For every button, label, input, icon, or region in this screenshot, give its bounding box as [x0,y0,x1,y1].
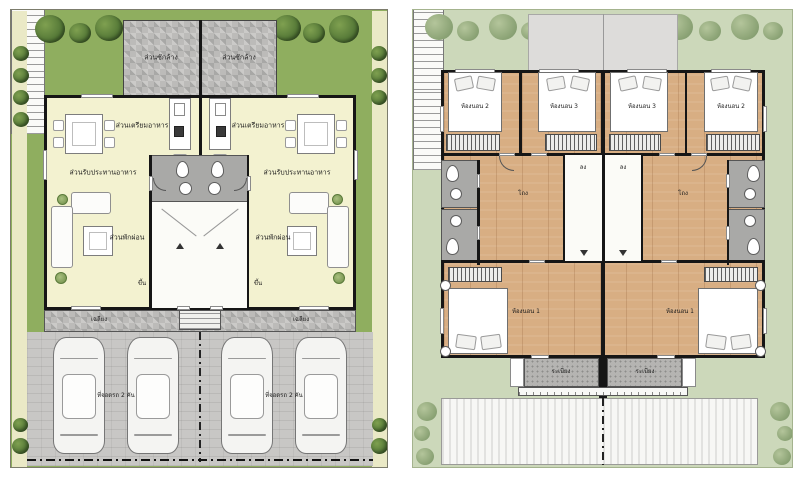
chair [336,137,347,148]
stairs-down-label: ลง [580,165,587,171]
floor-plan-canvas: ส่วนซักล้าง ส่วนซักล้าง ส่วนเตรียมอาหาร … [0,0,800,477]
bedroom-door [659,153,675,157]
stair-spine-wall [602,153,605,263]
bedroom-bed [704,72,758,132]
master-door [529,260,545,264]
tree [95,15,123,41]
bedroom1-label: ห้องนอน 1 [666,309,694,315]
first-floor-plan: ส่วนซักล้าง ส่วนซักล้าง ส่วนเตรียมอาหาร … [10,9,388,468]
bedroom-bed [538,72,596,132]
wash-basin [450,215,462,227]
coffee-table [287,226,317,256]
porch-label: เฉลียง [91,317,107,323]
bush [777,426,793,441]
tree [35,15,65,43]
living-label: ส่วนพักผ่อน [110,235,145,242]
bush [417,402,437,421]
balcony-label: ระเบียง [552,369,571,375]
dresser [704,267,758,282]
sofa [51,206,73,268]
bush [13,68,29,83]
sofa [71,192,111,214]
tree [69,23,91,43]
chair [285,137,296,148]
laundry-label: ส่วนซักล้าง [144,55,178,62]
window [763,308,767,334]
bedroom2-label: ห้องนอน 2 [461,104,489,110]
plant [57,194,68,205]
bedroom-bed [448,72,502,132]
chair [336,120,347,131]
window [763,106,767,132]
balcony-wing-wall [510,358,524,387]
porch-label: เฉลียง [293,317,309,323]
sofa [289,192,329,214]
wardrobe [446,134,500,151]
carport-roof [441,398,758,465]
bedroom3-label: ห้องนอน 3 [550,104,578,110]
wash-basin [744,215,756,227]
bedroom3-label: ห้องนอน 3 [628,104,656,110]
pantry-label: ส่วนเตรียมอาหาร [232,123,285,130]
stove [216,126,226,137]
window [354,150,358,180]
bathroom-door [726,174,730,188]
bush [371,438,388,454]
plant [332,194,343,205]
bedroom-wall [685,70,688,155]
second-floor-plan: ห้องนอน 2 ห้องนอน 3 ห้องนอน 3 ห้องนอน 2 … [412,9,793,468]
tree [425,14,453,40]
bathroom-door [247,176,251,191]
roof-ridge-line [603,14,604,72]
bush [371,46,387,61]
property-line [27,459,373,461]
window [287,94,319,98]
chair [53,137,64,148]
balcony-wing-wall [682,358,696,387]
stove [174,126,184,137]
tree [763,22,783,40]
coffee-table [83,226,113,256]
toilet [446,238,459,255]
window [81,94,113,98]
chair [53,120,64,131]
balcony-label: ระเบียง [636,369,655,375]
parking-label: ที่จอดรถ 2 คัน [97,393,135,399]
bedroom1-label: ห้องนอน 1 [512,309,540,315]
parking-label: ที่จอดรถ 2 คัน [265,393,303,399]
chair [104,137,115,148]
down-arrow [619,250,627,256]
bedroom-bed [610,72,668,132]
tree [489,14,517,40]
stair-hall [152,202,247,308]
bush [371,90,387,105]
master-bed [698,288,758,354]
up-arrow [216,243,224,249]
bush [13,90,29,105]
chair [285,120,296,131]
balcony-railing [518,387,688,396]
party-wall [199,20,202,100]
bush [13,418,28,432]
tree [699,21,721,41]
down-arrow [580,250,588,256]
bush [371,68,387,83]
pantry-label: ส่วนเตรียมอาหาร [116,123,169,130]
bedroom-wall [519,70,522,155]
bathroom [441,160,479,208]
stairs-up-label: ขึ้น [254,281,262,287]
dining-table [65,114,103,154]
tree [329,15,359,43]
stairs-up-label: ขึ้น [138,281,146,287]
kitchen-sink [174,103,185,116]
plant [55,272,67,284]
lot-divider-line [199,332,201,462]
nightstand-lamp [755,346,766,357]
bush [12,438,29,454]
wardrobe [609,134,661,151]
plant [333,272,345,284]
dresser [448,267,502,282]
bathroom-door [477,226,481,240]
dining-label: ส่วนรับประทานอาหาร [70,170,137,177]
bush [773,448,791,465]
bush [414,426,430,441]
wardrobe [545,134,597,151]
wash-basin [179,182,192,195]
wash-basin [208,182,221,195]
bathroom [727,160,765,208]
living-label: ส่วนพักผ่อน [256,235,291,242]
nightstand-lamp [440,346,451,357]
nightstand-lamp [755,280,766,291]
master-door [661,260,677,264]
bush [372,418,387,432]
wash-basin [450,188,462,200]
laundry-label: ส่วนซักล้าง [222,55,256,62]
toilet [446,165,459,182]
lot-divider-line [602,398,604,465]
toilet [747,238,760,255]
tree [731,14,759,40]
wash-basin [744,188,756,200]
tree [303,23,325,43]
kitchen-sink [215,103,226,116]
window [440,106,444,132]
porch-steps [179,310,221,330]
tree [457,21,479,41]
sofa [327,206,349,268]
bathroom-door [149,176,153,191]
hall-label: โถง [518,191,528,197]
tree [273,15,301,41]
nightstand-lamp [440,280,451,291]
toilet [747,165,760,182]
window [440,308,444,334]
master-wall [441,260,565,263]
dining-table [297,114,335,154]
master-bed [448,288,508,354]
up-arrow [176,243,184,249]
toilet [176,161,189,178]
bush [416,448,434,465]
dining-label: ส่วนรับประทานอาหาร [264,170,331,177]
bush [13,46,29,61]
bedroom-door [531,153,547,157]
stairs-down-label: ลง [620,165,627,171]
bathroom-door [477,174,481,188]
chair [104,120,115,131]
bedroom2-label: ห้องนอน 2 [717,104,745,110]
bush [770,402,790,421]
master-wall [641,260,765,263]
toilet [211,161,224,178]
wardrobe [706,134,760,151]
bathroom-door [726,226,730,240]
bush [13,112,29,127]
window [43,150,47,180]
hall-label: โถง [678,191,688,197]
